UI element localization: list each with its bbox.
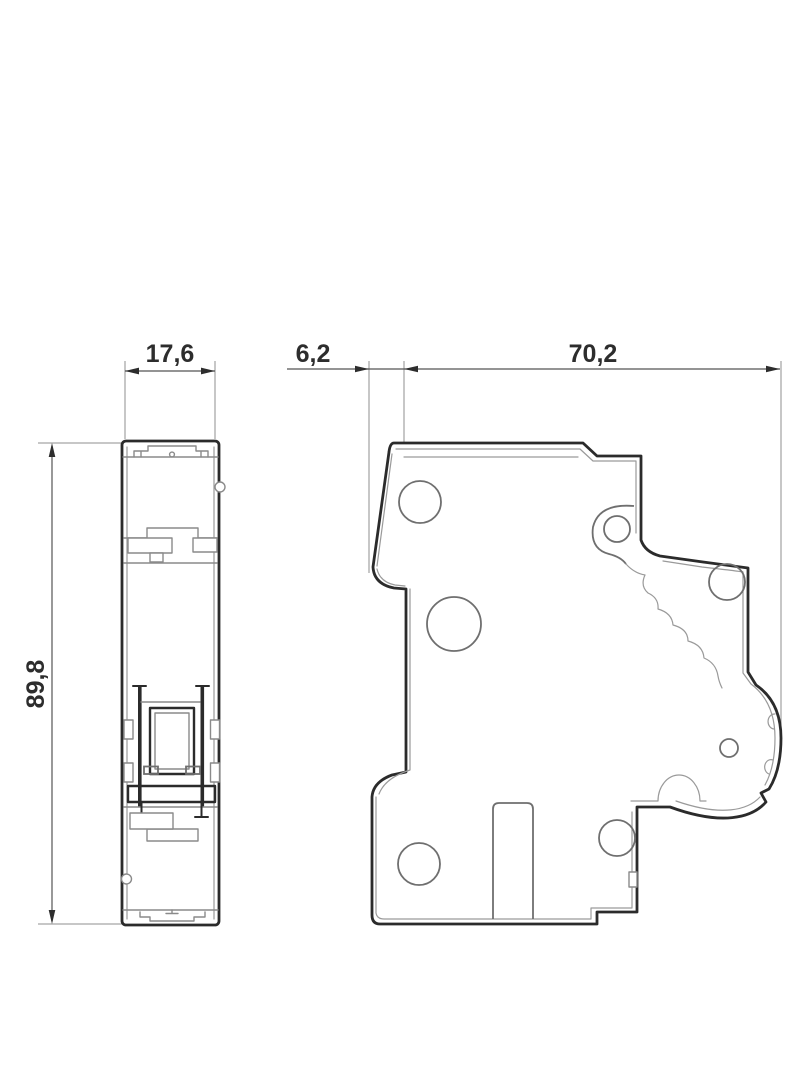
arrow-right-icon <box>201 368 215 375</box>
arrow-down-icon <box>49 910 56 924</box>
front-view <box>122 441 226 925</box>
arrow-right-icon <box>766 366 780 373</box>
front-clip-right-upper <box>211 720 220 739</box>
front-mid-platform-tab <box>150 553 163 562</box>
dimension-value-offset: 6,2 <box>296 340 331 368</box>
dimension-value: 89,8 <box>22 660 50 709</box>
arrow-up-icon <box>49 443 56 457</box>
technical-drawing: 17,6 6,2 70,2 89,8 <box>0 0 800 1091</box>
dimension-front-width: 17,6 <box>125 340 215 439</box>
side-latch-detail <box>629 872 637 887</box>
dimension-value-depth: 70,2 <box>569 340 618 368</box>
dimension-value: 17,6 <box>146 340 195 368</box>
front-left-boss <box>122 874 132 884</box>
front-rail-right <box>201 685 205 807</box>
front-mid-platform-right <box>193 538 217 552</box>
front-mid-platform-left <box>128 538 172 553</box>
front-right-boss <box>215 482 225 492</box>
arrow-right-icon <box>355 366 369 373</box>
front-low-platform-step <box>147 829 198 841</box>
side-view <box>372 443 781 924</box>
arrow-left-icon <box>125 368 139 375</box>
front-rail-left <box>138 685 142 807</box>
dimension-front-height: 89,8 <box>22 443 122 924</box>
front-clip-left-upper <box>124 720 133 739</box>
front-body-outline <box>122 441 219 925</box>
arrow-left-icon <box>404 366 418 373</box>
front-clip-left-lower <box>124 763 133 782</box>
front-clip-right-lower <box>211 763 220 782</box>
extension-line <box>38 443 122 924</box>
front-low-platform <box>130 813 173 829</box>
drawing-canvas: 17,6 6,2 70,2 89,8 <box>0 0 800 1091</box>
